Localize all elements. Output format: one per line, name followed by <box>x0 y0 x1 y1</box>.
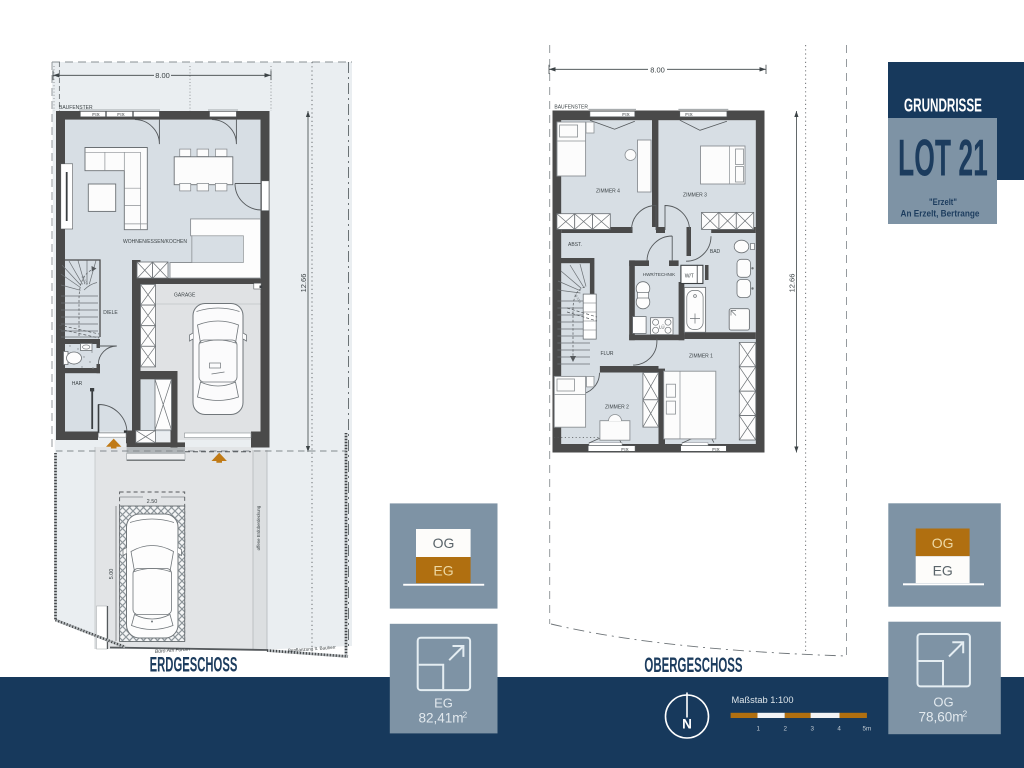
svg-text:GARAGE: GARAGE <box>174 293 196 299</box>
svg-text:1: 1 <box>757 726 761 733</box>
svg-text:8.00: 8.00 <box>155 71 170 80</box>
svg-text:82,41m: 82,41m <box>418 710 463 725</box>
svg-text:FIX: FIX <box>712 447 720 453</box>
svg-text:W/T: W/T <box>685 273 694 279</box>
svg-text:12.66: 12.66 <box>787 274 796 293</box>
svg-text:Maßstab 1:100: Maßstab 1:100 <box>732 695 794 705</box>
svg-text:EG: EG <box>433 563 453 579</box>
svg-text:DIELE: DIELE <box>103 310 118 316</box>
svg-text:HWR/TECHNIK: HWR/TECHNIK <box>643 272 676 277</box>
svg-text:FIX: FIX <box>622 112 630 118</box>
svg-text:FIX: FIX <box>621 447 629 453</box>
svg-text:5m: 5m <box>863 726 872 733</box>
svg-text:5.00: 5.00 <box>109 569 115 580</box>
svg-text:2: 2 <box>963 709 968 719</box>
svg-text:2.50: 2.50 <box>147 499 158 505</box>
svg-text:ERDGESCHOSS: ERDGESCHOSS <box>150 651 238 676</box>
svg-text:LÜ: LÜ <box>659 324 665 329</box>
svg-text:GRUNDRISSE: GRUNDRISSE <box>904 96 982 116</box>
svg-text:FIX: FIX <box>685 112 693 118</box>
svg-text:2: 2 <box>463 710 468 720</box>
svg-text:12.66: 12.66 <box>299 274 308 293</box>
svg-text:N: N <box>682 717 692 732</box>
svg-text:ZIMMER 1: ZIMMER 1 <box>689 354 713 360</box>
svg-text:OG: OG <box>932 535 954 551</box>
svg-text:LOT 21: LOT 21 <box>898 129 988 187</box>
svg-text:EG: EG <box>933 563 953 579</box>
svg-text:ZIMMER 2: ZIMMER 2 <box>605 405 629 411</box>
svg-text:8.00: 8.00 <box>650 65 665 74</box>
svg-text:ZIMMER 3: ZIMMER 3 <box>683 193 707 199</box>
svg-text:"Erzelt": "Erzelt" <box>929 196 957 207</box>
svg-text:OBERGESCHOSS: OBERGESCHOSS <box>644 652 742 677</box>
svg-text:BAUFENSTER: BAUFENSTER <box>554 105 588 111</box>
svg-text:FIX: FIX <box>92 112 100 118</box>
svg-text:HAR: HAR <box>72 381 83 387</box>
svg-text:offene Erdüberdeckung: offene Erdüberdeckung <box>256 505 261 550</box>
svg-text:ZIMMER 4: ZIMMER 4 <box>596 189 620 195</box>
svg-text:EG: EG <box>434 695 453 710</box>
svg-text:3: 3 <box>810 726 814 733</box>
svg-text:4: 4 <box>837 726 841 733</box>
svg-text:An Erzelt, Bertrange: An Erzelt, Bertrange <box>901 208 980 219</box>
svg-text:FIX: FIX <box>117 112 125 118</box>
svg-text:WOHNEN/ESSEN/KOCHEN: WOHNEN/ESSEN/KOCHEN <box>123 239 187 245</box>
svg-text:OG: OG <box>433 535 455 551</box>
svg-text:OG: OG <box>933 694 953 709</box>
svg-text:FLUR: FLUR <box>600 351 613 357</box>
svg-text:2: 2 <box>783 726 787 733</box>
svg-text:BAD: BAD <box>710 249 721 255</box>
svg-text:ABST.: ABST. <box>568 242 582 248</box>
svg-text:78,60m: 78,60m <box>918 709 963 724</box>
